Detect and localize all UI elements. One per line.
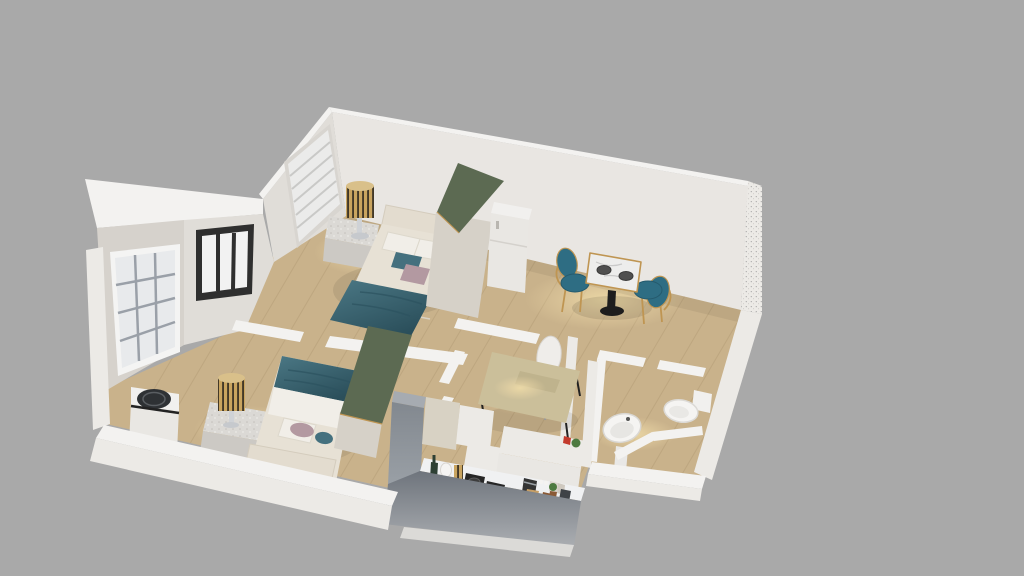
grid-window-pane — [115, 250, 175, 368]
refrigerator-handle — [496, 221, 499, 229]
table-base — [600, 306, 624, 316]
wine-bottle-neck — [433, 455, 436, 463]
dark-window-pane — [202, 231, 248, 293]
white-jar — [441, 463, 452, 477]
potted-plant — [572, 439, 581, 448]
cup — [539, 480, 543, 484]
render-viewport — [0, 0, 1024, 576]
sink-faucet — [626, 417, 630, 421]
desk-glow — [494, 376, 546, 400]
lamp-stem — [357, 218, 362, 234]
cup — [544, 481, 548, 485]
chair-seat — [561, 274, 589, 292]
lamp-base — [351, 233, 369, 240]
dinner-plate — [619, 272, 633, 281]
refrigerator-front — [487, 213, 529, 293]
lamp-shade-top — [218, 373, 245, 383]
dinner-plate — [597, 266, 611, 275]
floorplan-render — [0, 0, 1024, 576]
lamp-shade-top — [346, 181, 374, 191]
cabinet-beige — [422, 397, 460, 450]
refrigerator — [487, 202, 532, 293]
lamp-base — [223, 422, 239, 428]
dark-frame-window — [196, 224, 254, 301]
potted-plant — [549, 483, 557, 491]
